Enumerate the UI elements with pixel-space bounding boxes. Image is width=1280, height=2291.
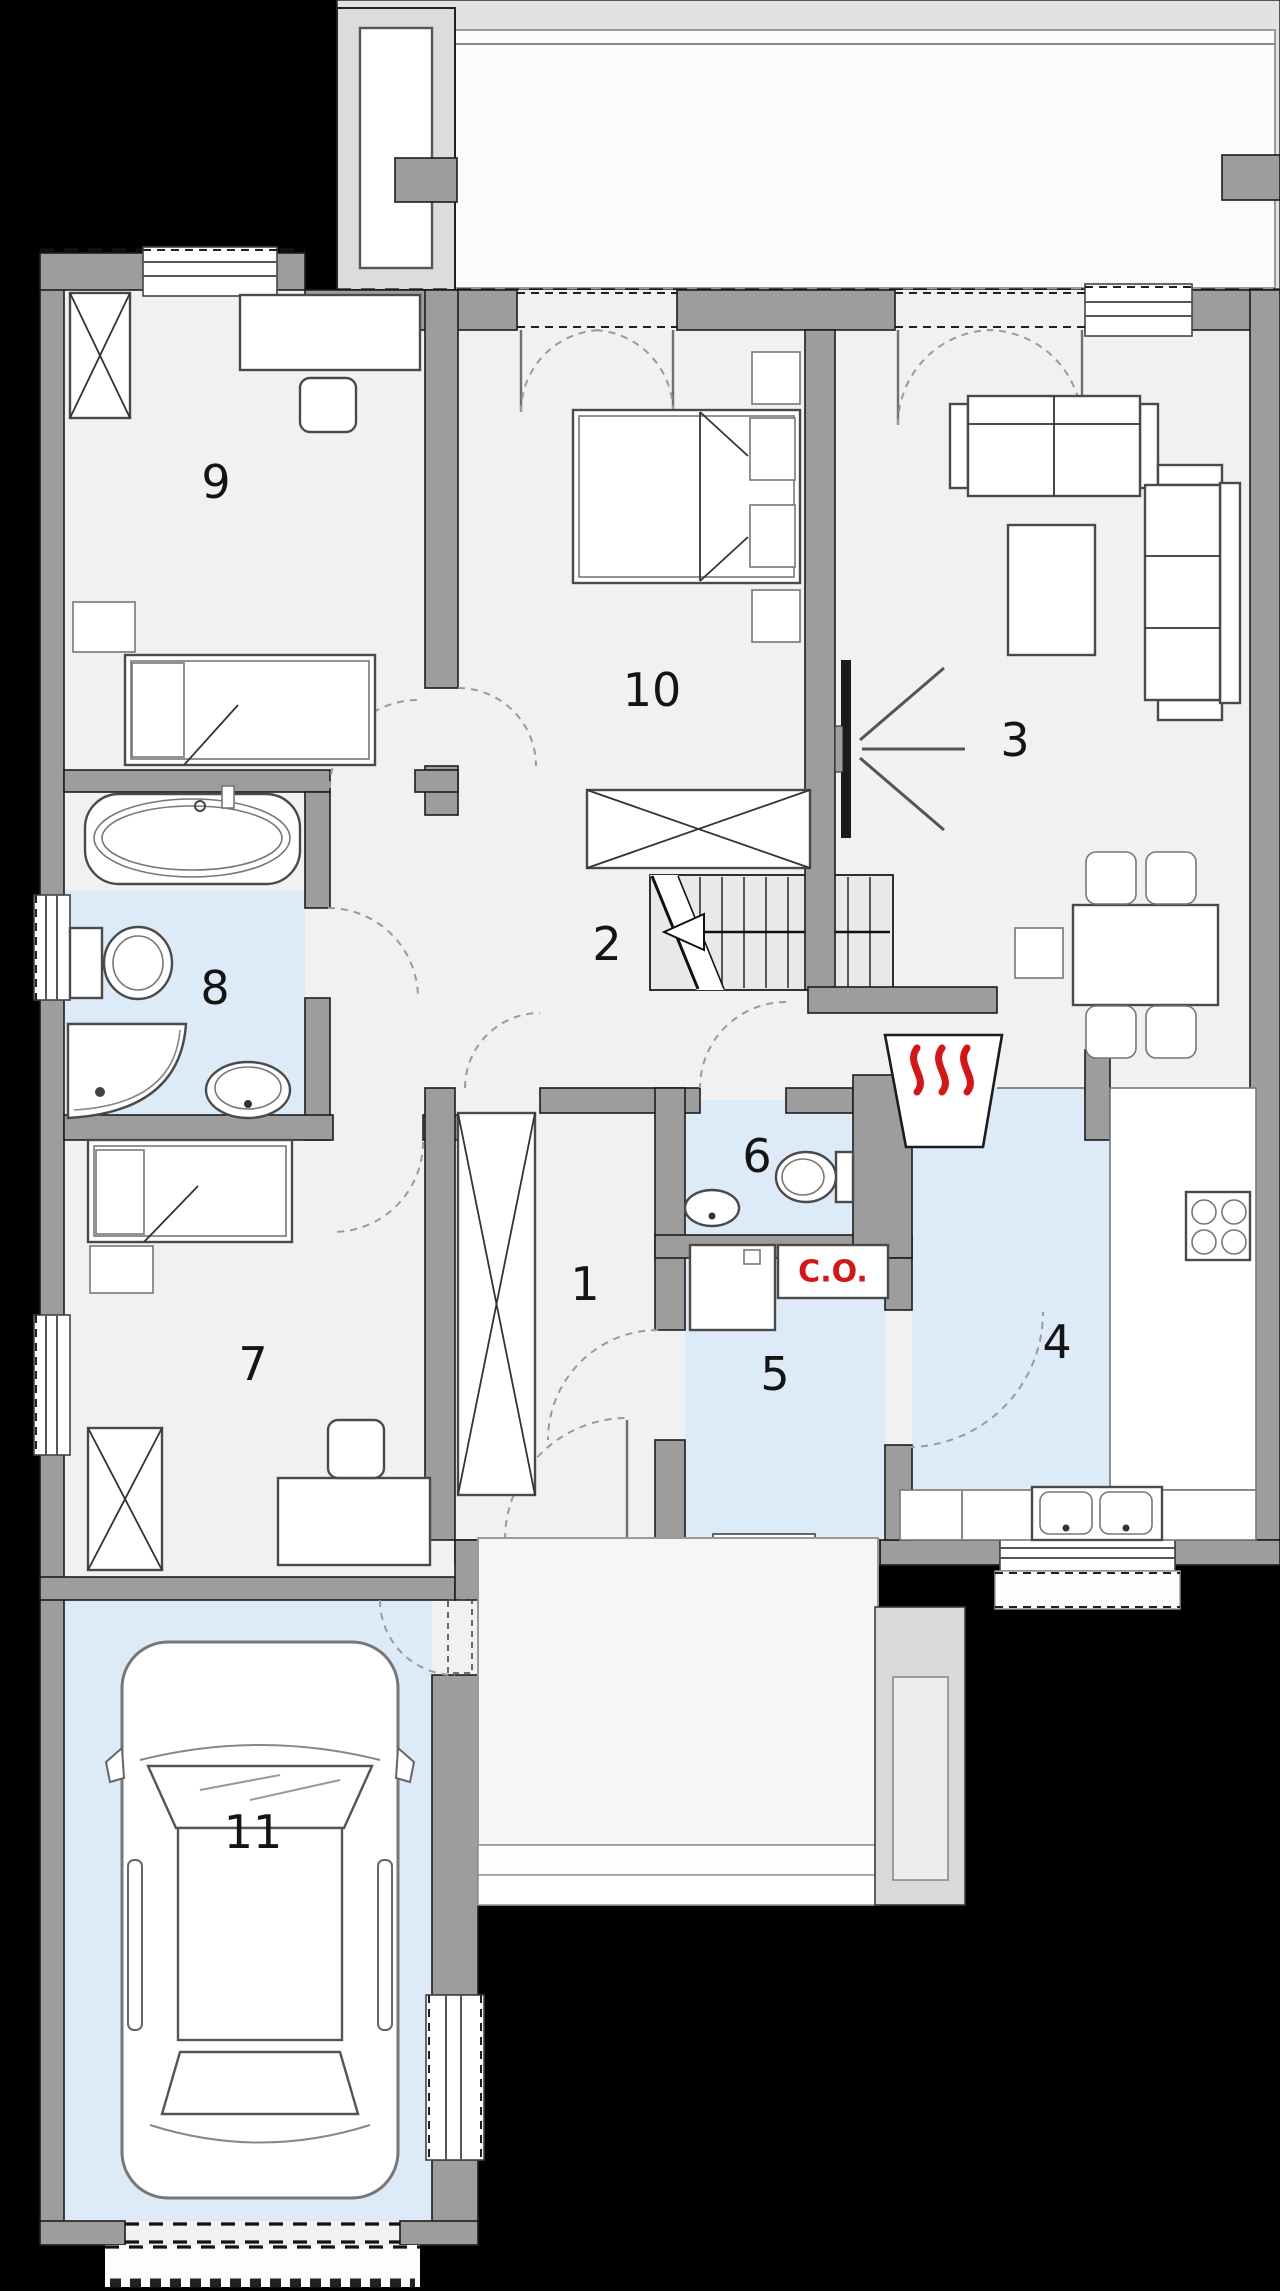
boiler-box: C.O. bbox=[778, 1245, 888, 1298]
room-label-2: 2 bbox=[592, 917, 621, 971]
room-label-3: 3 bbox=[1000, 713, 1029, 767]
counter-right bbox=[1110, 1088, 1256, 1490]
room-label-6: 6 bbox=[742, 1129, 771, 1183]
wardrobe bbox=[88, 1428, 162, 1570]
room-label-8: 8 bbox=[200, 961, 229, 1015]
stove bbox=[1186, 1192, 1250, 1260]
bathtub bbox=[85, 786, 300, 884]
nightstand bbox=[73, 602, 135, 652]
window-room3-top bbox=[1085, 284, 1192, 336]
wardrobe bbox=[70, 293, 130, 418]
desk bbox=[240, 295, 420, 370]
window-room7-left bbox=[34, 1315, 70, 1455]
bed bbox=[125, 655, 375, 765]
window-kitchen-bottom bbox=[995, 1534, 1180, 1609]
room-label-11: 11 bbox=[224, 1805, 283, 1859]
chair bbox=[300, 378, 356, 432]
washer bbox=[690, 1245, 775, 1330]
room-label-5: 5 bbox=[760, 1347, 789, 1401]
boiler-label: C.O. bbox=[798, 1255, 868, 1290]
rear-window bbox=[162, 2052, 358, 2114]
fireplace bbox=[885, 1035, 1002, 1147]
sofa bbox=[1145, 465, 1240, 720]
terrace-pillar bbox=[1222, 155, 1280, 200]
nightstand bbox=[752, 352, 800, 404]
room-label-9: 9 bbox=[201, 455, 230, 509]
toilet bbox=[70, 927, 172, 999]
chair bbox=[328, 1420, 384, 1478]
terrace bbox=[337, 0, 1280, 290]
garage-apron bbox=[105, 2245, 420, 2287]
wardrobe bbox=[587, 790, 810, 868]
staircase bbox=[650, 875, 893, 990]
nightstand bbox=[90, 1246, 153, 1293]
room-label-7: 7 bbox=[238, 1337, 267, 1391]
car bbox=[106, 1642, 414, 2198]
floor-plan-svg: C.O. bbox=[0, 0, 1280, 2291]
bed bbox=[88, 1140, 292, 1242]
double-bed bbox=[573, 410, 800, 583]
window-bathroom-left bbox=[34, 895, 70, 1000]
entrance-porch bbox=[478, 1538, 878, 1905]
loveseat bbox=[950, 396, 1158, 496]
nightstand bbox=[752, 590, 800, 642]
side-table bbox=[1015, 928, 1063, 978]
window-room9-top bbox=[143, 247, 277, 296]
window-garage-right bbox=[426, 1995, 484, 2160]
toilet bbox=[776, 1152, 853, 1202]
room1-furniture bbox=[458, 1113, 535, 1495]
hall-wardrobe bbox=[458, 1113, 535, 1495]
desk bbox=[278, 1478, 430, 1565]
room-label-4: 4 bbox=[1042, 1315, 1071, 1369]
room-label-1: 1 bbox=[570, 1257, 599, 1311]
sink bbox=[685, 1190, 739, 1226]
double-sink bbox=[1032, 1487, 1162, 1540]
side-deck bbox=[875, 1607, 965, 1905]
coffee-table bbox=[1008, 525, 1095, 655]
chimney bbox=[337, 8, 457, 290]
sink bbox=[206, 1062, 290, 1118]
room-label-10: 10 bbox=[623, 663, 682, 717]
